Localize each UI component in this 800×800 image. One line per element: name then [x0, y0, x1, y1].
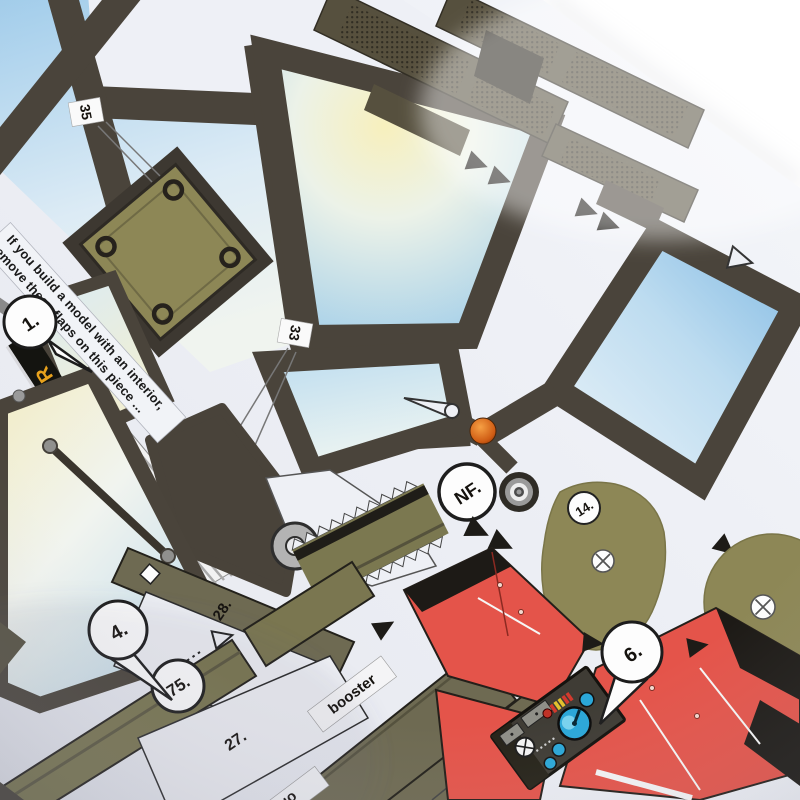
papercraft-sheet-photo: 35 33 [0, 0, 800, 800]
vignette-overlay [0, 0, 800, 800]
